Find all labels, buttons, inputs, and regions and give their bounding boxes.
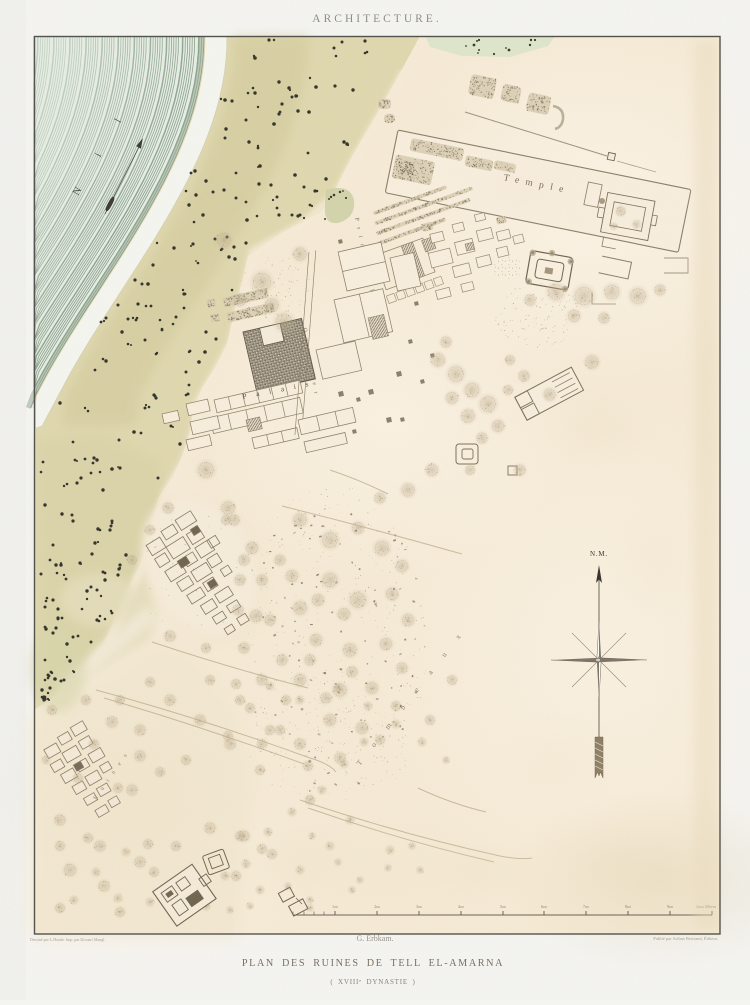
svg-text:PLAN DES RUINES DE TELL E: PLAN DES RUINES DE TELL EL-AMARNA (242, 958, 504, 969)
svg-text:G. Erbkam.: G. Erbkam. (356, 934, 393, 943)
svg-text:Dessiné par L.Houde. Imp. par: Dessiné par L.Houde. Imp. par Drouart Ma… (30, 937, 105, 942)
svg-text:ARCHITECTURE.: ARCHITECTURE. (312, 13, 441, 25)
svg-text:( XVIIIe DYNASTIE ): ( XVIIIe DYNASTIE ) (330, 978, 415, 986)
